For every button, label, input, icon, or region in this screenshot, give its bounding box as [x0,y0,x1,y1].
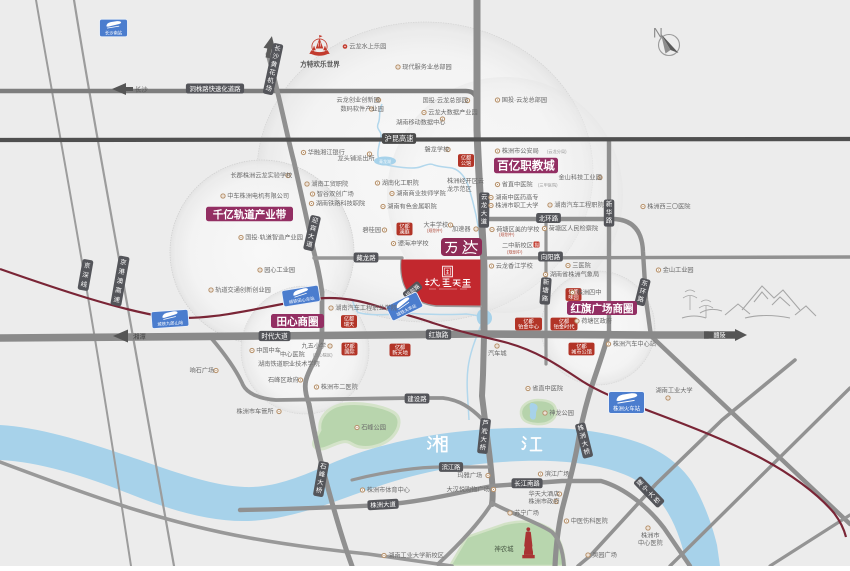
svg-text:醴陵: 醴陵 [713,332,725,340]
svg-text:红旗广场商圈: 红旗广场商圈 [571,302,634,315]
svg-text:金山科技工业园: 金山科技工业园 [559,174,602,182]
svg-text:滨江路: 滨江路 [442,463,461,471]
svg-text:亿都: 亿都 [523,317,533,325]
svg-text:荷塘区人民检察院: 荷塘区人民检察院 [549,225,599,233]
svg-text:云龙香江学校: 云龙香江学校 [496,262,533,270]
svg-text:园心工业园: 园心工业园 [264,266,295,274]
svg-text:湖南铁路科技职院: 湖南铁路科技职院 [316,200,366,208]
svg-text:奥园广场: 奥园广场 [592,551,617,559]
svg-text:亿都: 亿都 [559,317,569,325]
svg-text:(云龙分局): (云龙分局) [547,148,567,155]
svg-text:中心医院: 中心医院 [280,351,305,359]
svg-text:苏宁广场: 苏宁广场 [514,509,539,517]
svg-text:石: 石 [319,462,327,471]
svg-text:株洲市公安局: 株洲市公安局 [502,147,539,155]
svg-text:汽车城: 汽车城 [488,350,507,358]
svg-text:大: 大 [481,208,488,217]
svg-text:神农城: 神农城 [494,544,514,553]
svg-text:湖南工贸职院: 湖南工贸职院 [311,180,348,188]
svg-text:现代服务业总部园: 现代服务业总部园 [402,63,452,71]
svg-text:响石广场: 响石广场 [190,367,215,375]
svg-text:(规划中): (规划中) [499,231,515,238]
svg-text:路: 路 [606,216,613,225]
svg-text:亿都: 亿都 [395,343,405,351]
svg-text:道: 道 [481,217,488,226]
svg-text:城市公馆: 城市公馆 [571,348,592,356]
svg-text:湖南工业大学新校区: 湖南工业大学新校区 [388,552,444,560]
svg-text:湘潭: 湘潭 [133,332,146,341]
svg-text:国投·云龙总部园: 国投·云龙总部园 [423,97,468,105]
svg-text:数码软件产业园: 数码软件产业园 [341,105,384,113]
svg-text:滨江广场: 滨江广场 [545,470,570,478]
svg-text:石峰区政府: 石峰区政府 [268,376,299,384]
svg-text:龙: 龙 [481,200,488,209]
svg-text:湖南商业技师学院: 湖南商业技师学院 [396,190,446,198]
svg-text:云龙创业创新园: 云龙创业创新园 [337,96,380,104]
svg-text:华: 华 [606,207,613,216]
svg-text:华天大酒店: 华天大酒店 [529,490,560,498]
svg-text:千亿轨道产业带: 千亿轨道产业带 [213,208,287,221]
svg-text:湖南汽车工程职业学院: 湖南汽车工程职业学院 [335,304,397,312]
svg-text:湖南工业大学: 湖南工业大学 [656,387,693,395]
svg-text:省直中医院: 省直中医院 [502,181,533,189]
svg-text:拟: 拟 [535,241,540,247]
svg-text:二中新校区: 二中新校区 [502,242,533,250]
svg-text:中车株洲电机有限公司: 中车株洲电机有限公司 [227,192,289,200]
svg-text:加速器: 加速器 [452,225,471,233]
svg-text:方特欢乐世界: 方特欢乐世界 [300,60,340,69]
svg-text:轨道交通创新创业园: 轨道交通创新创业园 [215,286,271,294]
svg-text:铂金时代: 铂金时代 [554,323,576,331]
svg-text:洞株路快速化道路: 洞株路快速化道路 [189,84,241,93]
svg-text:株洲市职工大学: 株洲市职工大学 [495,202,538,210]
svg-text:省直中医院: 省直中医院 [532,385,563,393]
svg-text:株洲市体育中心: 株洲市体育中心 [367,486,410,494]
svg-text:国投·云龙总部园: 国投·云龙总部园 [502,96,547,104]
svg-text:中国中车: 中国中车 [256,347,281,355]
svg-text:湖南移动数据中心: 湖南移动数据中心 [396,119,446,127]
svg-text:云龙水上乐园: 云龙水上乐园 [349,43,386,51]
svg-text:中医伤科医院: 中医伤科医院 [571,517,608,525]
svg-text:云: 云 [481,193,488,201]
svg-text:国投·轨道智造产业园: 国投·轨道智造产业园 [245,234,303,242]
svg-text:亿都: 亿都 [344,314,354,322]
svg-text:亿都: 亿都 [399,222,409,230]
svg-text:株洲市政府: 株洲市政府 [529,498,560,506]
svg-text:湖南汽车工程职院: 湖南汽车工程职院 [554,201,604,209]
svg-text:亿都: 亿都 [461,153,471,161]
svg-text:株洲经开区云: 株洲经开区云 [447,177,484,185]
svg-text:神龙公园: 神龙公园 [549,409,574,417]
svg-text:株洲四中: 株洲四中 [577,289,602,297]
svg-text:长郡株洲云龙实验学校: 长郡株洲云龙实验学校 [231,172,293,180]
svg-text:塘: 塘 [542,285,550,294]
svg-text:金山工业园: 金山工业园 [663,266,694,274]
svg-text:三医院: 三医院 [572,262,591,270]
svg-text:湖南化工职院: 湖南化工职院 [382,179,419,187]
svg-text:瑞天: 瑞天 [344,320,354,328]
svg-text:北环路: 北环路 [539,213,559,222]
svg-text:国际: 国际 [344,348,354,356]
svg-text:红旗路: 红旗路 [429,330,449,339]
svg-text:湖南中医药高专: 湖南中医药高专 [495,194,538,202]
svg-text:中心医院: 中心医院 [638,539,663,547]
svg-text:碧桂园: 碧桂园 [363,226,382,234]
svg-text:(三甲医院): (三甲医院) [538,182,558,189]
svg-text:大汉悦购物广场: 大汉悦购物广场 [447,486,490,494]
svg-text:时代大道: 时代大道 [261,332,288,341]
svg-text:藏龙路: 藏龙路 [356,253,376,262]
svg-text:株洲火车站: 株洲火车站 [613,405,641,413]
svg-text:株洲市二医院: 株洲市二医院 [321,383,358,391]
svg-text:长江南路: 长江南路 [514,479,540,488]
svg-text:石峰公园: 石峰公园 [361,424,386,432]
svg-text:株洲汽车中心站: 株洲汽车中心站 [613,340,656,348]
svg-text:青龙湖: 青龙湖 [379,158,391,164]
svg-text:(规划中): (规划中) [427,227,443,234]
svg-text:湖南有色金属职院: 湖南有色金属职院 [387,203,437,211]
svg-text:(规划中): (规划中) [507,249,523,256]
svg-text:荷塘区政府: 荷塘区政府 [581,317,612,325]
svg-text:龙示范区: 龙示范区 [447,185,472,193]
svg-text:田心商圈: 田心商圈 [277,315,319,328]
svg-text:铂金中心: 铂金中心 [518,323,539,331]
svg-text:株洲市: 株洲市 [641,532,660,540]
svg-text:澜庭: 澜庭 [399,228,409,236]
svg-text:株洲西三〇医院: 株洲西三〇医院 [647,203,690,211]
svg-text:向阳路: 向阳路 [541,252,561,261]
svg-text:亿都: 亿都 [576,342,586,350]
svg-text:长沙南站: 长沙南站 [105,29,123,36]
svg-text:新天地: 新天地 [392,349,408,357]
svg-text:九五小学: 九五小学 [302,342,327,350]
svg-text:湖南铁道职业技术学院: 湖南铁道职业技术学院 [258,360,320,368]
svg-text:百亿职教城: 百亿职教城 [497,159,555,173]
svg-text:龙头铺派出所: 龙头铺派出所 [338,155,375,163]
svg-text:新: 新 [606,199,613,208]
svg-text:湖南省株洲气象局: 湖南省株洲气象局 [550,271,600,279]
svg-text:云龙大数据产业园: 云龙大数据产业园 [428,109,478,117]
svg-text:谭海冲学校: 谭海冲学校 [398,240,429,248]
svg-text:智谷双创广场: 智谷双创广场 [317,190,354,198]
svg-text:玛雅广场: 玛雅广场 [458,472,483,480]
svg-text:磐龙学校: 磐龙学校 [425,146,450,154]
svg-text:沪昆高速: 沪昆高速 [385,134,414,143]
svg-text:建设路: 建设路 [407,394,427,403]
svg-text:公馆: 公馆 [461,159,471,167]
svg-text:株洲市车管所: 株洲市车管所 [237,408,274,416]
svg-text:亿都: 亿都 [344,342,354,350]
svg-text:长沙: 长沙 [135,85,148,94]
svg-text:(田心院区): (田心院区) [313,352,333,359]
